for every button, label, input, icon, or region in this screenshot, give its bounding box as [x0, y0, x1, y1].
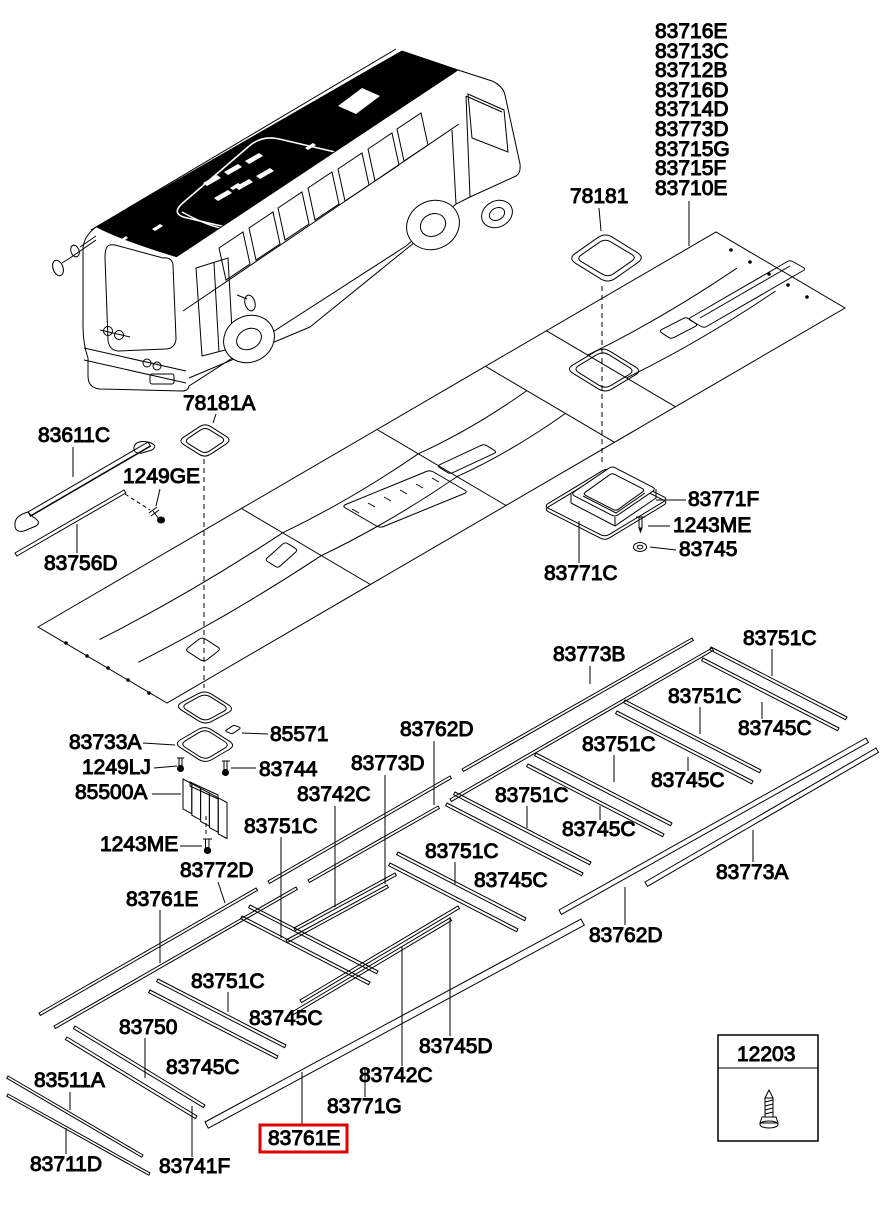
svg-text:83756D: 83756D — [44, 552, 118, 575]
svg-text:83742C: 83742C — [297, 783, 371, 806]
svg-text:83745C: 83745C — [166, 1056, 240, 1079]
svg-text:83771C: 83771C — [544, 562, 618, 585]
svg-text:83771G: 83771G — [327, 1095, 402, 1118]
svg-text:83772D: 83772D — [180, 859, 254, 882]
svg-text:83745C: 83745C — [651, 769, 725, 792]
svg-text:1249GE: 1249GE — [123, 465, 200, 488]
svg-text:83751C: 83751C — [191, 970, 265, 993]
svg-text:83745D: 83745D — [419, 1035, 493, 1058]
svg-text:1243ME: 1243ME — [673, 514, 751, 537]
svg-text:85571: 85571 — [270, 723, 328, 746]
svg-text:83761E: 83761E — [268, 1127, 340, 1150]
svg-text:12203: 12203 — [737, 1043, 795, 1066]
svg-text:83762D: 83762D — [400, 718, 474, 741]
svg-text:83751C: 83751C — [425, 840, 499, 863]
svg-text:83771F: 83771F — [688, 488, 759, 511]
svg-text:83751C: 83751C — [743, 627, 817, 650]
svg-text:85500A: 85500A — [75, 781, 147, 804]
svg-text:83750: 83750 — [119, 1016, 177, 1039]
svg-text:83745C: 83745C — [474, 869, 548, 892]
svg-text:83745: 83745 — [679, 538, 737, 561]
svg-text:83711D: 83711D — [30, 1153, 102, 1176]
svg-text:83742C: 83742C — [359, 1064, 433, 1087]
svg-text:83745C: 83745C — [249, 1007, 323, 1030]
svg-text:83745C: 83745C — [562, 818, 636, 841]
svg-text:83773D: 83773D — [351, 752, 425, 775]
svg-text:83733A: 83733A — [69, 731, 141, 754]
svg-text:1249LJ: 1249LJ — [82, 756, 151, 779]
svg-text:1243ME: 1243ME — [100, 833, 178, 856]
svg-text:83511A: 83511A — [34, 1069, 105, 1092]
svg-text:83745C: 83745C — [738, 717, 812, 740]
svg-text:83751C: 83751C — [495, 784, 569, 807]
svg-text:78181A: 78181A — [183, 392, 255, 415]
svg-text:83710E: 83710E — [655, 177, 727, 200]
svg-text:83773A: 83773A — [716, 861, 788, 884]
svg-text:83611C: 83611C — [38, 424, 110, 447]
svg-text:83751C: 83751C — [582, 733, 656, 756]
svg-text:78181: 78181 — [570, 185, 628, 208]
svg-text:83751C: 83751C — [668, 685, 742, 708]
svg-text:83744: 83744 — [259, 758, 318, 781]
svg-text:83741F: 83741F — [159, 1155, 230, 1178]
svg-text:83751C: 83751C — [244, 815, 318, 838]
svg-text:83773B: 83773B — [553, 643, 625, 666]
svg-text:83761E: 83761E — [126, 888, 198, 911]
svg-text:83762D: 83762D — [589, 924, 663, 947]
